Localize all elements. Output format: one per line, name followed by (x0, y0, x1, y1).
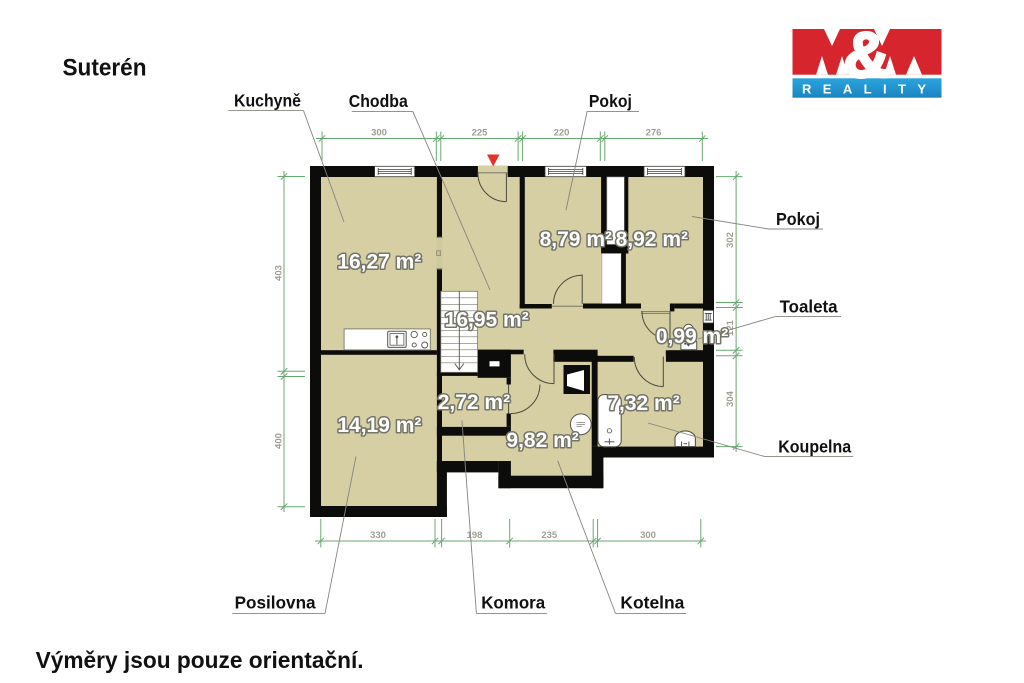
svg-text:Kotelna: Kotelna (620, 593, 684, 613)
svg-text:8,79 m²: 8,79 m² (540, 228, 612, 251)
svg-text:0,99 m²: 0,99 m² (656, 325, 728, 348)
svg-text:Koupelna: Koupelna (778, 437, 851, 457)
svg-text:300: 300 (371, 128, 387, 139)
svg-text:9,82 m²: 9,82 m² (506, 429, 578, 452)
svg-text:235: 235 (541, 530, 558, 541)
svg-text:Kuchyně: Kuchyně (234, 91, 301, 111)
svg-text:304: 304 (725, 390, 736, 407)
svg-text:8,92 m²: 8,92 m² (616, 228, 688, 251)
svg-text:300: 300 (640, 530, 656, 541)
svg-text:16,27 m²: 16,27 m² (337, 251, 421, 274)
svg-text:Pokoj: Pokoj (776, 209, 820, 229)
svg-text:220: 220 (554, 128, 570, 139)
svg-text:Toaleta: Toaleta (780, 297, 838, 317)
svg-text:400: 400 (274, 433, 285, 449)
svg-text:Posilovna: Posilovna (235, 593, 316, 613)
svg-text:Suterén: Suterén (63, 55, 147, 82)
svg-text:14,19 m²: 14,19 m² (337, 414, 421, 437)
svg-text:&: & (843, 19, 889, 91)
svg-text:198: 198 (467, 530, 483, 541)
svg-text:225: 225 (472, 128, 489, 139)
svg-text:Chodba: Chodba (349, 91, 408, 111)
svg-text:16,95 m²: 16,95 m² (445, 309, 529, 332)
svg-text:Pokoj: Pokoj (589, 91, 632, 111)
svg-text:Komora: Komora (481, 593, 545, 613)
svg-text:302: 302 (725, 232, 736, 248)
svg-text:2,72 m²: 2,72 m² (438, 391, 510, 414)
svg-text:276: 276 (646, 128, 662, 139)
svg-text:403: 403 (274, 265, 285, 281)
svg-text:330: 330 (370, 530, 386, 541)
svg-text:Výměry jsou pouze orientační.: Výměry jsou pouze orientační. (36, 647, 364, 673)
svg-text:7,32 m²: 7,32 m² (607, 392, 679, 415)
